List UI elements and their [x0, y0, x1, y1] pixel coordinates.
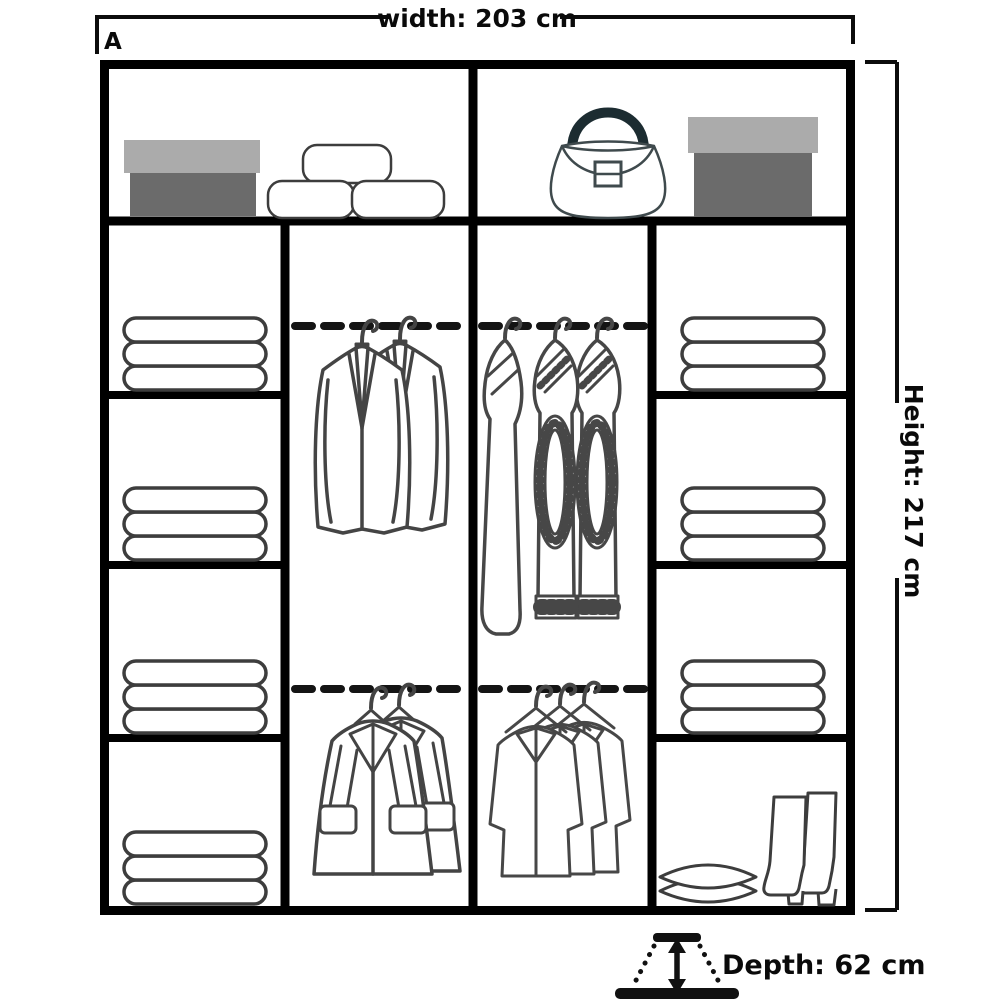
shoebox	[124, 140, 260, 216]
depth-icon	[615, 933, 739, 999]
knit-garment	[534, 319, 578, 618]
knit-garments	[482, 319, 620, 634]
knit-garment	[576, 319, 620, 618]
height-label: Height: 217 cm	[899, 384, 928, 599]
hat-boxes	[268, 145, 444, 218]
suit-jackets	[315, 318, 447, 533]
coats	[314, 685, 460, 874]
shirts	[490, 683, 630, 876]
variant-label: A	[104, 29, 122, 55]
towel-stack	[124, 661, 266, 733]
boots	[764, 793, 836, 905]
towel-stack	[682, 318, 824, 390]
towel-stack	[124, 488, 266, 560]
depth-label: Depth: 62 cm	[722, 950, 926, 981]
towel-stack	[124, 318, 266, 390]
handbag	[551, 113, 665, 219]
width-label: width: 203 cm	[377, 4, 577, 33]
diagram-scene: width: 203 cm A Height: 217 cm	[0, 0, 1000, 1000]
coat	[314, 688, 432, 874]
wardrobe-dimensions-diagram: width: 203 cm A Height: 217 cm	[0, 0, 1000, 1000]
knit-garment	[482, 319, 522, 634]
storage-box	[688, 117, 818, 217]
towel-stack	[682, 488, 824, 560]
height-dimension	[865, 62, 897, 910]
towel-stack	[682, 661, 824, 733]
pillows	[660, 865, 756, 902]
towel-stack	[124, 832, 266, 904]
